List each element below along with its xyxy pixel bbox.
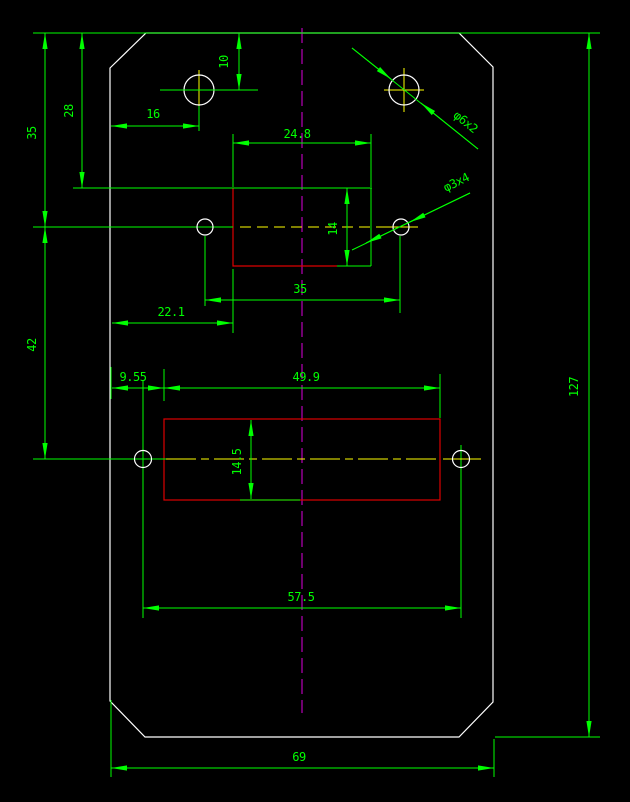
leader-arrow bbox=[366, 217, 420, 243]
dim-text: 28 bbox=[62, 104, 76, 118]
dim-10[interactable]: 10 bbox=[160, 33, 258, 90]
dim-text: 10 bbox=[217, 55, 231, 69]
dim-35-vertical[interactable]: 35 bbox=[25, 33, 45, 227]
dim-text: 49.9 bbox=[293, 370, 320, 384]
dim-text: 22.1 bbox=[158, 305, 185, 319]
dim-text: 69 bbox=[292, 750, 306, 764]
dim-14-5[interactable]: 14.5 bbox=[230, 420, 251, 499]
center-marks bbox=[166, 68, 481, 459]
dim-text: 127 bbox=[567, 377, 581, 397]
dim-text: 24.8 bbox=[284, 127, 311, 141]
dim-28[interactable]: 28 bbox=[62, 33, 82, 188]
leader-arrow bbox=[352, 48, 391, 79]
callout-text: φ6x2 bbox=[451, 108, 481, 136]
dim-42[interactable]: 42 bbox=[25, 227, 45, 459]
dim-text: 14.5 bbox=[230, 448, 244, 475]
callout-phi3x4[interactable]: φ3x4 bbox=[352, 170, 472, 250]
dim-text: 57.5 bbox=[288, 590, 315, 604]
callout-text: φ3x4 bbox=[441, 170, 472, 194]
dim-text: 14 bbox=[326, 222, 340, 236]
dim-16[interactable]: 16 bbox=[111, 106, 199, 131]
dim-text: 35 bbox=[293, 282, 307, 296]
dim-text: 9.55 bbox=[120, 370, 147, 384]
dim-text: 35 bbox=[25, 126, 39, 140]
dim-9-55[interactable]: 9.55 bbox=[111, 367, 164, 401]
dim-text: 42 bbox=[25, 338, 39, 352]
dim-text: 16 bbox=[146, 107, 160, 121]
extension-lines bbox=[33, 33, 600, 737]
dim-127[interactable]: 127 bbox=[567, 33, 589, 737]
dim-22-1[interactable]: 22.1 bbox=[112, 269, 233, 333]
cad-canvas[interactable]: 35 28 42 127 10 16 24.8 14 35 bbox=[0, 0, 630, 802]
